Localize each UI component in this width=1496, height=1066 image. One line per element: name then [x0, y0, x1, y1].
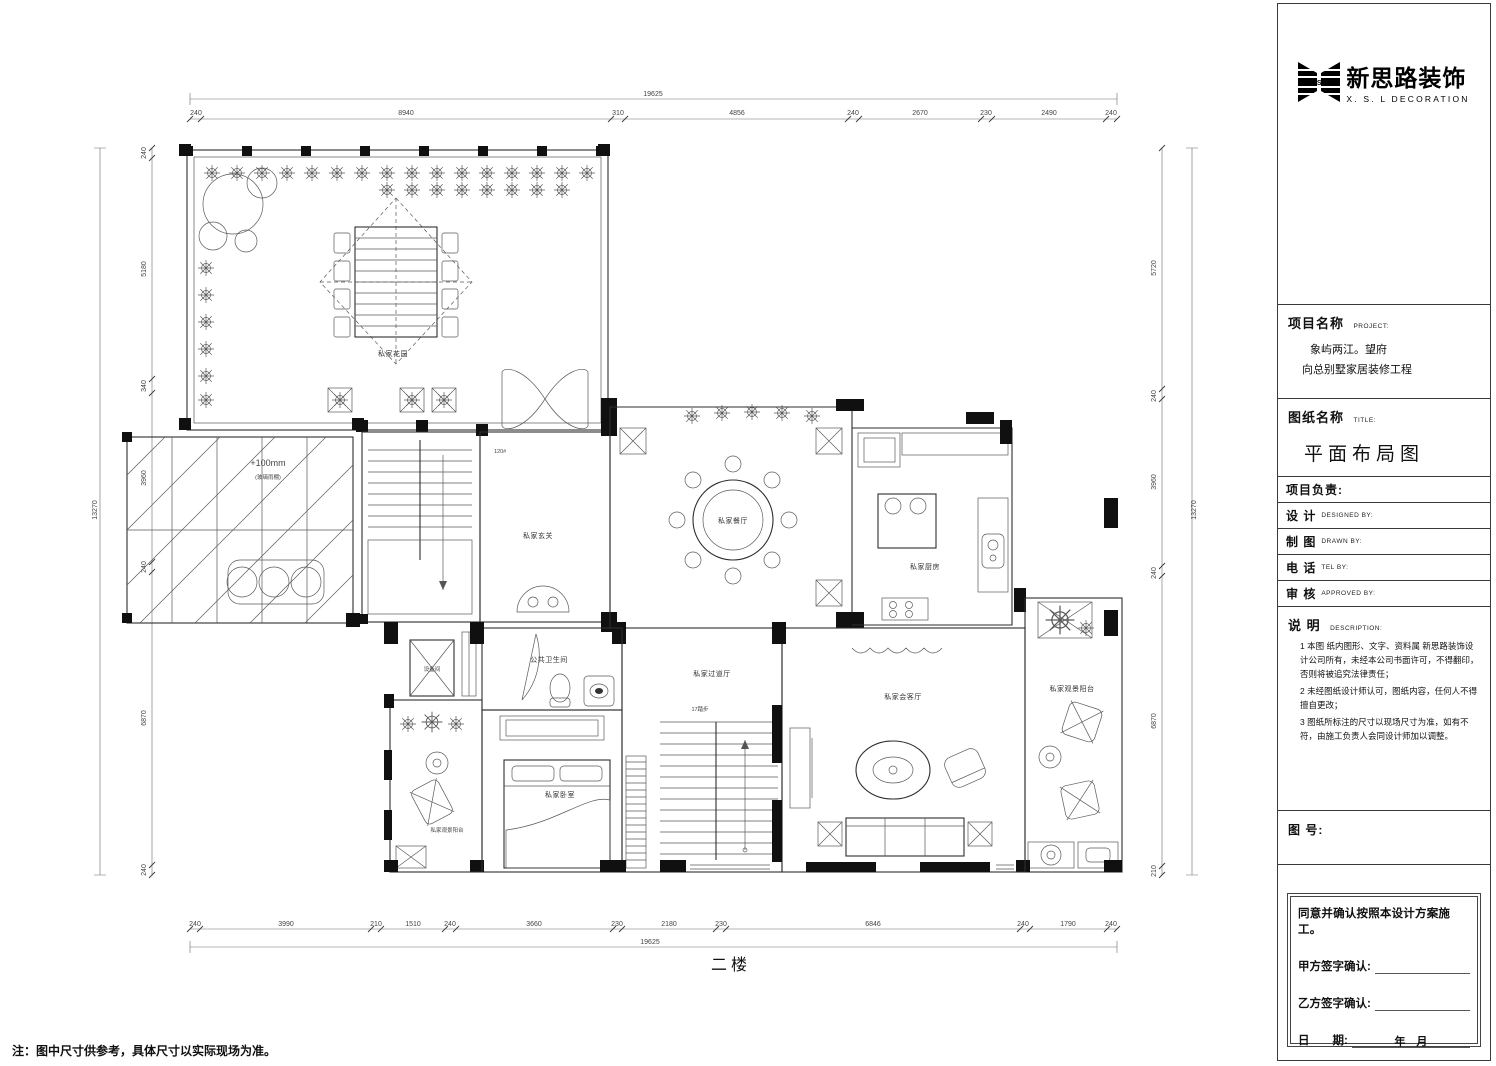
- dim: 6870: [1151, 713, 1158, 729]
- dim: 230: [715, 921, 727, 928]
- living-room: 私家会客厅: [782, 628, 1025, 872]
- drawing-label: 图纸名称: [1288, 410, 1344, 425]
- leader-label: 项目负责:: [1286, 481, 1343, 498]
- stairs-upper: [356, 424, 488, 624]
- foyer: 120# 私家玄关: [480, 369, 617, 632]
- dim: 240: [1017, 921, 1029, 928]
- room-label-garden: 私家花园: [378, 349, 408, 358]
- drawing-name-section: 图纸名称 TITLE: 平面布局图: [1278, 398, 1490, 476]
- project-label: 项目名称: [1288, 316, 1344, 331]
- dim: 240: [1105, 110, 1117, 117]
- project-name-line2: 向总别墅家居装修工程: [1302, 361, 1480, 377]
- dim: 230: [980, 110, 992, 117]
- wall-segments: [660, 860, 990, 872]
- tel-label: 电 话: [1286, 559, 1316, 576]
- signature-statement: 同意并确认按照本设计方案施工。: [1298, 905, 1470, 937]
- room-label-balcony-left: 私家观景阳台: [430, 826, 464, 834]
- date-line[interactable]: 年 月: [1352, 1033, 1470, 1048]
- brand-name-cn: 新思路装饰: [1346, 59, 1469, 93]
- dim: 230: [611, 921, 623, 928]
- dim: 4856: [729, 110, 745, 117]
- room-label-balcony-right: 私家观景阳台: [1050, 684, 1095, 693]
- company-logo: X.S.L 新思路装饰 X. S. L DECORATION: [1278, 59, 1490, 104]
- signature-section: 同意并确认按照本设计方案施工。 甲方签字确认: 乙方签字确认: 日 期: 年 月: [1278, 864, 1490, 1060]
- room-label-living: 私家会客厅: [884, 692, 922, 701]
- dim: 5720: [1151, 260, 1158, 276]
- dim: 240: [141, 147, 148, 159]
- dim: 2490: [1041, 110, 1057, 117]
- dim-right-overall: 13270: [1191, 500, 1198, 520]
- balcony-left: 私家观景阳台: [384, 622, 482, 872]
- dim: 8940: [398, 110, 414, 117]
- designed-by-label: 设 计: [1286, 507, 1316, 524]
- room-label-foyer: 私家玄关: [523, 531, 553, 540]
- stair-steps-label: 17踏步: [691, 705, 709, 713]
- dim: 240: [190, 110, 202, 117]
- dining-room: 私家餐厅: [610, 399, 864, 628]
- description-label: 说 明: [1288, 618, 1321, 633]
- designed-by-label-en: DESIGNED BY:: [1321, 512, 1373, 519]
- floor-label: 二楼: [693, 951, 769, 975]
- canopy-level: +100mm: [250, 458, 285, 468]
- bathroom: 公共卫生间: [482, 628, 622, 710]
- description-section: 说 明 DESCRIPTION: 1 本图 纸内图形、文字、资料属 新思路装饰设…: [1278, 606, 1490, 810]
- drawing-number-label: 图 号:: [1288, 823, 1323, 837]
- dim-bottom-overall: 19625: [640, 939, 660, 946]
- canopy-note: (玻璃雨棚): [255, 473, 281, 481]
- room-label-bathroom: 公共卫生间: [530, 655, 568, 664]
- drawing-number-section: 图 号:: [1278, 810, 1490, 864]
- drawn-by-label-en: DRAWN BY:: [1321, 538, 1362, 545]
- tel-row: 电 话 TEL BY:: [1278, 554, 1490, 580]
- title-block-panel: X.S.L 新思路装饰 X. S. L DECORATION 项目名称 PROJ…: [1277, 3, 1491, 1061]
- description-label-en: DESCRIPTION:: [1330, 625, 1382, 632]
- dim: 240: [1151, 390, 1158, 402]
- party-b-signature-line[interactable]: [1375, 996, 1470, 1011]
- approved-by-row: 审 核 APPROVED BY:: [1278, 580, 1490, 606]
- dim: 240: [141, 864, 148, 876]
- garden: 私家花园: [179, 144, 610, 432]
- dim: 340: [141, 380, 148, 392]
- project-label-en: PROJECT:: [1353, 323, 1388, 330]
- door-mark: 120#: [494, 449, 507, 455]
- dim: 3960: [1151, 474, 1158, 490]
- dim: 240: [444, 921, 456, 928]
- room-label-dining: 私家餐厅: [718, 516, 748, 525]
- dim: 1790: [1060, 921, 1076, 928]
- party-b-label: 乙方签字确认:: [1298, 995, 1371, 1011]
- garden-pots: [328, 388, 456, 412]
- drawn-by-row: 制 图 DRAWN BY:: [1278, 528, 1490, 554]
- dim: 240: [1105, 921, 1117, 928]
- logo-mark-icon: X.S.L: [1298, 62, 1340, 102]
- dim: 2180: [661, 921, 677, 928]
- dim: 3960: [141, 470, 148, 486]
- garden-dining-set: [320, 198, 472, 364]
- date-label: 日 期:: [1298, 1032, 1348, 1048]
- equipment-room: 设备间: [410, 632, 476, 696]
- floor-plan: 19625 240 8940 310 4856 240 2670 230 249…: [0, 0, 1277, 1066]
- balcony-right: 私家观景阳台: [1016, 498, 1122, 872]
- dim-top-overall: 19625: [643, 91, 663, 98]
- signature-box: 同意并确认按照本设计方案施工。 甲方签字确认: 乙方签字确认: 日 期: 年 月: [1287, 893, 1481, 1047]
- dim: 3990: [278, 921, 294, 928]
- room-label-kitchen: 私家厨房: [910, 562, 940, 571]
- room-label-equipment: 设备间: [424, 665, 441, 673]
- dim-left-overall: 13270: [92, 500, 99, 520]
- dim: 310: [612, 110, 624, 117]
- brand-name-en: X. S. L DECORATION: [1346, 94, 1469, 104]
- dim: 240: [847, 110, 859, 117]
- drawn-by-label: 制 图: [1286, 533, 1316, 550]
- description-item: 1 本图 纸内图形、文字、资料属 新思路装饰设计公司所有，未经本公司书面许可，不…: [1300, 639, 1480, 681]
- project-name-section: 项目名称 PROJECT: 象屿两江。望府 向总别墅家居装修工程: [1278, 304, 1490, 398]
- description-item: 2 未经图纸设计师认可，图纸内容，任何人不得擅自更改；: [1300, 684, 1480, 712]
- dim: 240: [189, 921, 201, 928]
- approved-by-label: 审 核: [1286, 585, 1316, 602]
- sheet-note: 注：图中尺寸供参考，具体尺寸以实际现场为准。: [12, 1042, 276, 1059]
- project-name-line1: 象屿两江。望府: [1310, 341, 1480, 357]
- kitchen: 私家厨房: [852, 412, 1026, 653]
- dim: 240: [141, 561, 148, 573]
- svg-text:X.S.L: X.S.L: [1311, 80, 1329, 87]
- dim: 240: [1151, 567, 1158, 579]
- dim: 1510: [405, 921, 421, 928]
- dim: 210: [370, 921, 382, 928]
- drawing-title: 平面布局图: [1304, 439, 1480, 466]
- leader-row: 项目负责:: [1278, 476, 1490, 502]
- glass-canopy: +100mm (玻璃雨棚): [122, 432, 360, 627]
- dim: 210: [1151, 865, 1158, 877]
- dim: 2670: [912, 110, 928, 117]
- dim: 5180: [141, 261, 148, 277]
- dim: 3660: [526, 921, 542, 928]
- approved-by-label-en: APPROVED BY:: [1321, 590, 1375, 597]
- dim: 6846: [865, 921, 881, 928]
- drawing-label-en: TITLE:: [1353, 417, 1376, 424]
- designed-by-row: 设 计 DESIGNED BY:: [1278, 502, 1490, 528]
- party-a-signature-line[interactable]: [1375, 959, 1470, 974]
- dim: 6870: [141, 710, 148, 726]
- description-item: 3 图纸所标注的尺寸以现场尺寸为准，如有不符，由施工负责人会同设计师加以调整。: [1300, 715, 1480, 743]
- room-label-bedroom: 私家卧室: [545, 790, 575, 799]
- corridor-stairs: 17踏步 私家过道厅: [612, 622, 786, 872]
- tel-label-en: TEL BY:: [1321, 564, 1348, 571]
- room-label-corridor: 私家过道厅: [693, 669, 731, 678]
- party-a-label: 甲方签字确认:: [1298, 958, 1371, 974]
